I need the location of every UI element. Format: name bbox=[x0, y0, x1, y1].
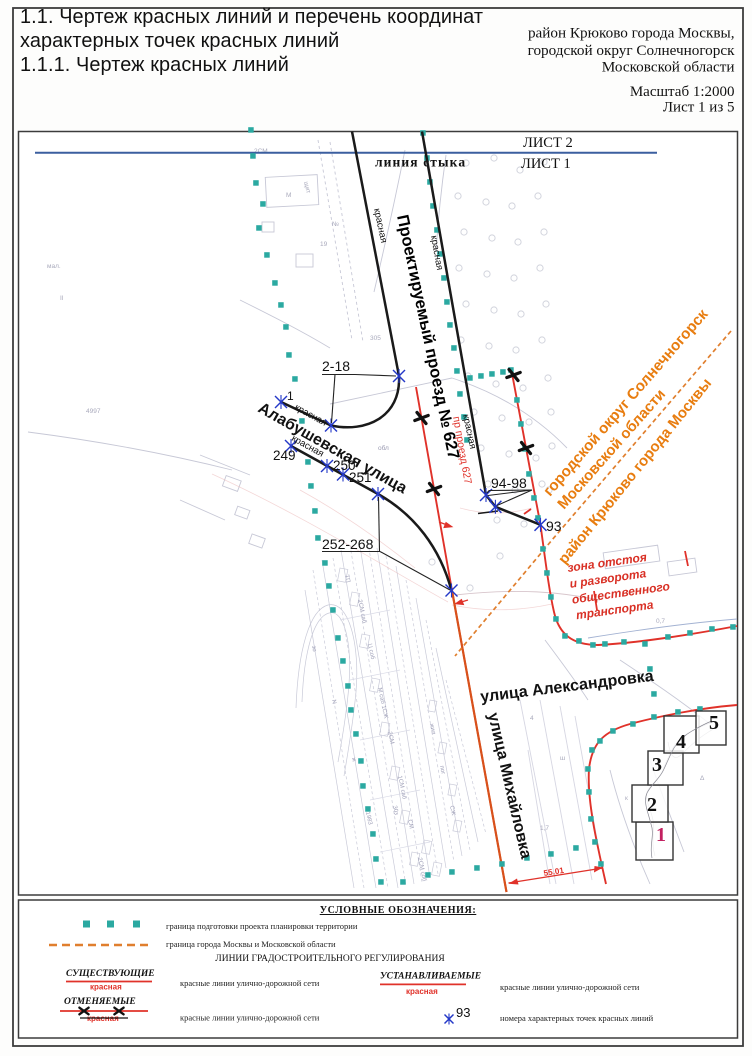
svg-text:3: 3 bbox=[652, 754, 662, 776]
svg-text:номера характерных точек красн: номера характерных точек красных линий bbox=[500, 1013, 654, 1023]
svg-text:4: 4 bbox=[676, 731, 686, 753]
svg-text:93: 93 bbox=[456, 1005, 470, 1020]
svg-text:93: 93 bbox=[546, 518, 562, 534]
svg-text:красные линии улично-дорожной: красные линии улично-дорожной сети bbox=[180, 978, 320, 988]
svg-text:1.1. Чертеж красных линий и пе: 1.1. Чертеж красных линий и перечень коо… bbox=[20, 6, 483, 28]
svg-text:5: 5 bbox=[709, 712, 719, 734]
svg-text:0,7: 0,7 bbox=[656, 618, 665, 625]
svg-text:УСТАНАВЛИВАЕМЫЕ: УСТАНАВЛИВАЕМЫЕ bbox=[380, 972, 481, 982]
svg-text:ОТМЕНЯЕМЫЕ: ОТМЕНЯЕМЫЕ bbox=[64, 997, 136, 1007]
svg-text:мал.: мал. bbox=[47, 263, 61, 270]
svg-text:красные линии улично-дорожной: красные линии улично-дорожной сети bbox=[180, 1013, 320, 1023]
svg-text:ЛИСТ 2: ЛИСТ 2 bbox=[523, 135, 573, 151]
svg-text:305: 305 bbox=[370, 335, 381, 342]
svg-text:характерных точек красных лини: характерных точек красных линий bbox=[20, 30, 339, 52]
svg-text:1.1.1. Чертеж красных линий: 1.1.1. Чертеж красных линий bbox=[20, 54, 289, 76]
svg-text:Московской области: Московской области bbox=[602, 59, 735, 76]
svg-text:94-98: 94-98 bbox=[491, 475, 527, 491]
svg-text:2СМ: 2СМ bbox=[254, 148, 268, 155]
svg-text:2: 2 bbox=[647, 794, 657, 816]
svg-text:Лист 1 из 5: Лист 1 из 5 bbox=[663, 100, 735, 116]
svg-text:4997: 4997 bbox=[86, 408, 101, 415]
svg-text:район Крюково города Москвы,: район Крюково города Москвы, bbox=[528, 25, 735, 42]
svg-text:линия стыка: линия стыка bbox=[375, 155, 466, 170]
svg-text:4: 4 bbox=[530, 715, 534, 722]
svg-text:252-268: 252-268 bbox=[322, 536, 374, 552]
svg-text:249: 249 bbox=[273, 448, 296, 463]
svg-text:красная: красная bbox=[406, 987, 438, 996]
svg-text:ЛИСТ 1: ЛИСТ 1 bbox=[521, 156, 571, 172]
svg-text:1: 1 bbox=[656, 824, 666, 846]
svg-text:граница подготовки проекта пла: граница подготовки проекта планировки те… bbox=[166, 921, 358, 931]
svg-text:ЛИНИИ ГРАДОСТРОИТЕЛЬНОГО РЕГУЛ: ЛИНИИ ГРАДОСТРОИТЕЛЬНОГО РЕГУЛИРОВАНИЯ bbox=[215, 954, 445, 964]
svg-text:19: 19 bbox=[320, 241, 328, 248]
svg-text:красная: красная bbox=[90, 983, 122, 992]
svg-text:граница города Москвы и Москов: граница города Москвы и Московской облас… bbox=[166, 939, 336, 949]
svg-text:ш: ш bbox=[560, 755, 565, 762]
svg-text:1: 1 bbox=[287, 389, 294, 403]
svg-text:II: II bbox=[60, 295, 64, 302]
svg-text:Δ: Δ bbox=[700, 775, 705, 782]
svg-text:СУЩЕСТВУЮЩИЕ: СУЩЕСТВУЮЩИЕ bbox=[66, 969, 155, 979]
svg-text:красные линии улично-дорожной: красные линии улично-дорожной сети bbox=[500, 982, 640, 992]
svg-text:обл: обл bbox=[378, 444, 389, 452]
svg-text:№: № bbox=[332, 221, 339, 228]
svg-text:городской округ Солнечногорск: городской округ Солнечногорск bbox=[528, 42, 736, 59]
svg-text:1,7: 1,7 bbox=[540, 825, 549, 832]
svg-text:Масштаб 1:2000: Масштаб 1:2000 bbox=[630, 84, 735, 100]
svg-text:2-18: 2-18 bbox=[322, 358, 350, 374]
svg-text:к: к bbox=[625, 795, 628, 802]
svg-text:М: М bbox=[286, 192, 291, 199]
svg-text:УСЛОВНЫЕ ОБОЗНАЧЕНИЯ:: УСЛОВНЫЕ ОБОЗНАЧЕНИЯ: bbox=[320, 905, 477, 916]
